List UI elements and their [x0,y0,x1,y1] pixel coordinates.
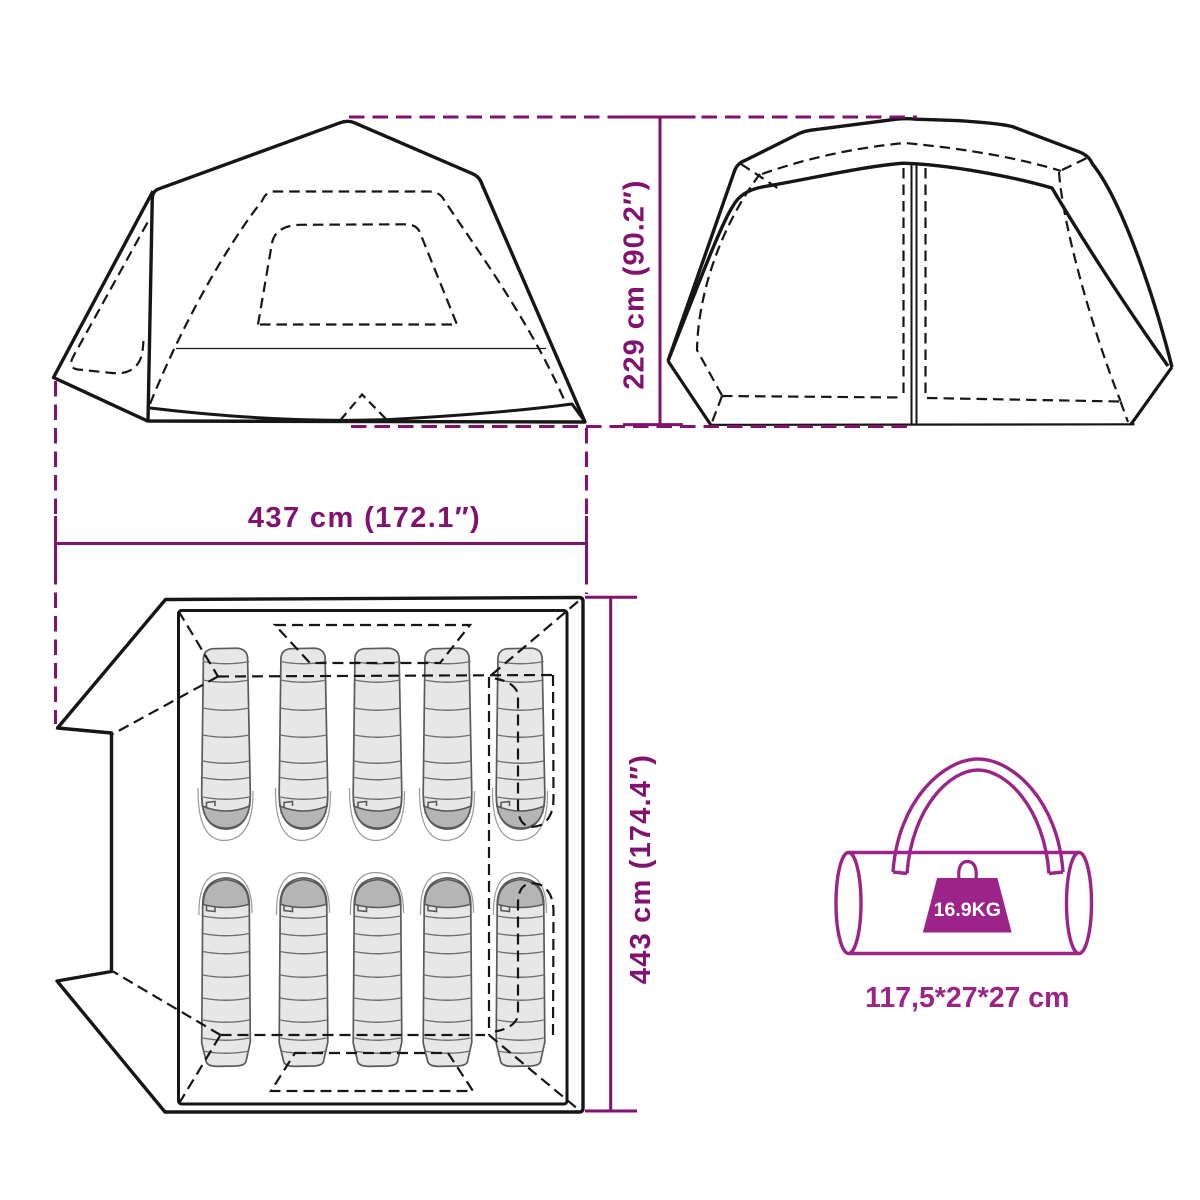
svg-text:443 cm (174.4″): 443 cm (174.4″) [625,754,657,984]
svg-text:229 cm (90.2″): 229 cm (90.2″) [619,180,651,390]
svg-text:16.9KG: 16.9KG [934,899,1001,921]
svg-text:437 cm (172.1″): 437 cm (172.1″) [248,502,481,534]
svg-text:117,5*27*27 cm: 117,5*27*27 cm [865,982,1069,1014]
